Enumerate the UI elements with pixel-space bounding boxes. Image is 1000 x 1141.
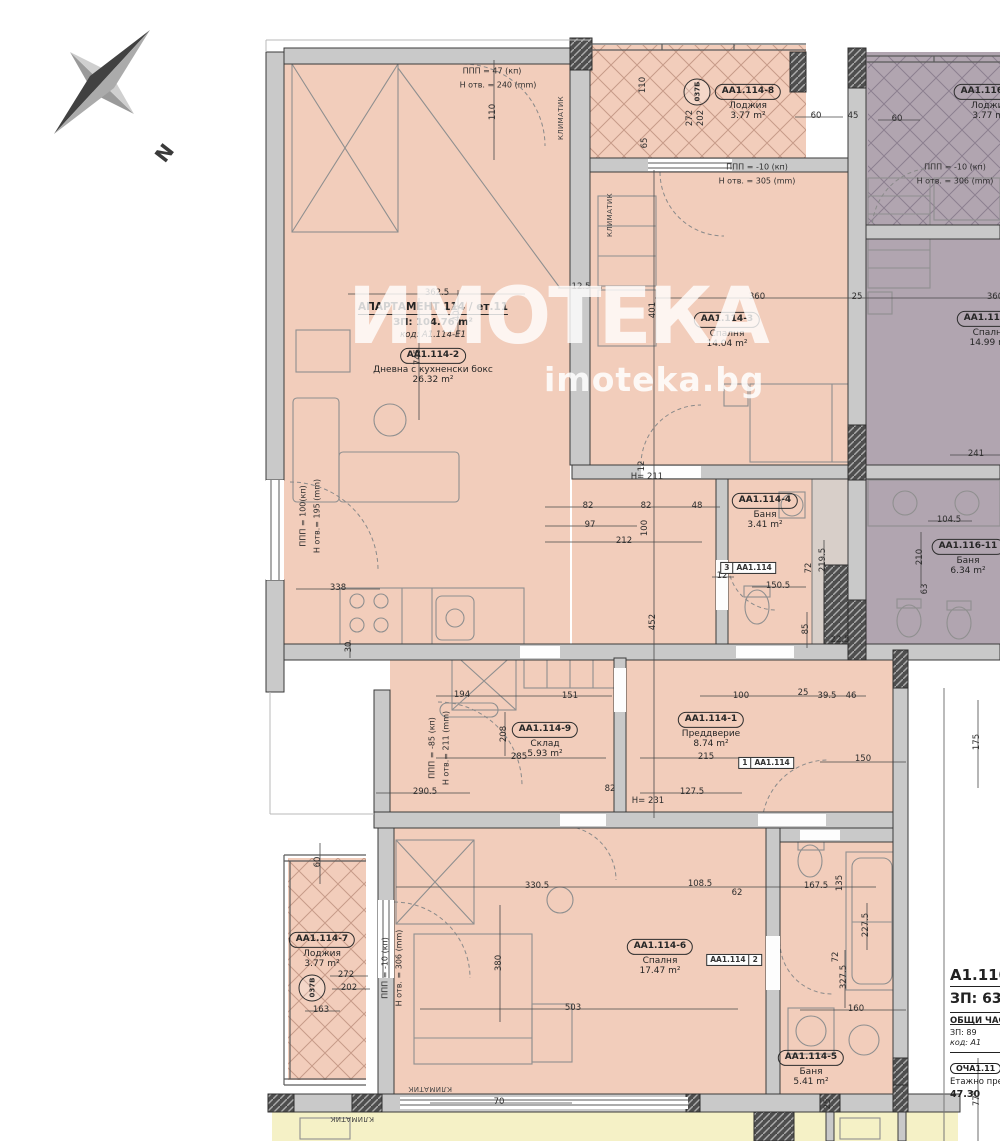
room-label: AA1.114-4 Баня 3.41 m² bbox=[732, 488, 798, 530]
annotation-label: ППП = 100(кп) bbox=[298, 485, 307, 546]
floorplan-canvas: N АПАРТАМЕНТ 114 / ет.11 ЗП: 104.76 m² к… bbox=[0, 0, 1000, 1141]
annotation-label: Н отв. = 306 (mm) bbox=[394, 930, 403, 1007]
dimension-label: 327.5 bbox=[840, 965, 850, 989]
apartment-header: АПАРТАМЕНТ 114 / ет.11 ЗП: 104.76 m² код… bbox=[358, 301, 508, 340]
dimension-value: 401 bbox=[648, 302, 658, 318]
dimension-label: 12 bbox=[638, 461, 648, 472]
room-name: Баня bbox=[778, 1066, 844, 1076]
compass-north-label: N bbox=[150, 139, 179, 167]
dimension-label: 215 bbox=[698, 753, 714, 763]
annotation-label: ППП = -85 (кп) bbox=[427, 717, 436, 779]
dimension-value: 25 bbox=[852, 292, 863, 302]
annotation-text: Н отв.= 211 (mm) bbox=[441, 711, 450, 785]
info-area: ЗП: 63 bbox=[950, 991, 1000, 1007]
door-tag: 1 AA1.114 bbox=[738, 757, 794, 769]
dimension-value: 403 bbox=[452, 305, 462, 321]
dimension-value: 290.5 bbox=[413, 787, 437, 797]
room-name: Лоджия bbox=[715, 100, 781, 110]
info-common-parts: ОБЩИ ЧАСТИ bbox=[950, 1016, 1000, 1026]
dimension-label: 401 bbox=[649, 302, 659, 318]
annotation-text: КЛИМАТИК bbox=[330, 1115, 374, 1123]
dimension-label: 110 bbox=[489, 104, 499, 120]
room-label: AA1.114-8 Лоджия 3.77 m² bbox=[715, 79, 781, 121]
annotation-label: ППП = -10 (кп) bbox=[380, 937, 389, 999]
dimension-value: 60 bbox=[313, 857, 323, 868]
dimension-label: 452 bbox=[649, 614, 659, 630]
dimension-label: 212 bbox=[616, 537, 632, 547]
dimension-value: 72 bbox=[804, 563, 814, 574]
dimension-label: 135 bbox=[836, 875, 846, 891]
dimension-value: 272 bbox=[338, 970, 354, 980]
room-name: Баня bbox=[932, 555, 1000, 565]
dimension-value: 327.5 bbox=[839, 965, 849, 989]
room-name: Лоджия bbox=[289, 948, 355, 958]
room-id: AA1.114-3 bbox=[694, 312, 760, 328]
dimension-label: 85 bbox=[802, 624, 812, 635]
dimension-label: 82 bbox=[583, 502, 594, 512]
dimension-label: 127.5 bbox=[680, 788, 704, 798]
room-name: Баня bbox=[732, 509, 798, 519]
info-value: 47.30 bbox=[950, 1089, 1000, 1100]
dimension-value: 215 bbox=[698, 752, 714, 762]
dimension-label: 290.5 bbox=[413, 788, 437, 798]
room-area: 17.47 m² bbox=[627, 966, 693, 976]
dimension-label: 72 bbox=[832, 952, 842, 963]
dimension-value: 72 bbox=[831, 952, 841, 963]
room-name: Спалня bbox=[627, 955, 693, 965]
room-id: AA1.116-9 bbox=[957, 311, 1000, 327]
dimension-label: 25 bbox=[824, 1099, 834, 1110]
dimension-label: 97 bbox=[585, 521, 596, 531]
dimension-label: 360 bbox=[749, 293, 765, 303]
dimension-label: 403 bbox=[453, 305, 463, 321]
info-floor-hall: Етажно пре bbox=[950, 1077, 1000, 1087]
annotation-text: ППП = 100(кп) bbox=[298, 485, 307, 546]
annotation-text: ППП = -10 (кп) bbox=[380, 937, 389, 999]
dimension-value: 330.5 bbox=[525, 881, 549, 891]
dimension-label: 194 bbox=[454, 691, 470, 701]
room-label: AA1.114-2 Дневна с кухненски бокс 26.32 … bbox=[373, 343, 493, 385]
dimension-value: 25 bbox=[823, 1099, 833, 1110]
annotation-label: КЛИМАТИК bbox=[330, 1115, 374, 1123]
info-tag: ОЧА1.11 bbox=[950, 1063, 1000, 1074]
dimension-label: 380 bbox=[495, 955, 505, 971]
dimension-label: 48 bbox=[692, 502, 703, 512]
dimension-value: 60 bbox=[892, 114, 903, 124]
annotation-label: Н отв. = 240 (mm) bbox=[460, 80, 537, 89]
dimension-value: 100 bbox=[733, 691, 749, 701]
dimension-label: 219.5 bbox=[819, 548, 829, 572]
labels-layer: N АПАРТАМЕНТ 114 / ет.11 ЗП: 104.76 m² к… bbox=[0, 0, 1000, 1141]
dimension-value: 202 bbox=[696, 110, 706, 126]
dimension-value: 151 bbox=[562, 691, 578, 701]
room-id: AA1.114-2 bbox=[400, 348, 466, 364]
dimension-label: 22.5 bbox=[831, 636, 850, 646]
dimension-value: 12.5 bbox=[572, 282, 591, 292]
dimension-value: 70 bbox=[494, 1097, 505, 1107]
annotation-text: ППП = -10 (кп) bbox=[924, 162, 986, 171]
annotation-text: Н отв. = 306 (mm) bbox=[394, 930, 403, 1007]
room-label: AA1.114-5 Баня 5.41 m² bbox=[778, 1045, 844, 1087]
dimension-label: 46 bbox=[846, 692, 857, 702]
room-name: Склад bbox=[512, 738, 578, 748]
dimension-label: 25 bbox=[852, 293, 863, 303]
annotation-label: ППП = 47 (кп) bbox=[463, 66, 522, 75]
dimension-label: 65 bbox=[641, 138, 651, 149]
dimension-value: 12 bbox=[637, 461, 647, 472]
dimension-label: 167.5 bbox=[804, 882, 828, 892]
annotation-text: Н отв.= 195 (mm) bbox=[312, 479, 321, 553]
info-block: A1.110 - ЗП: 63 ОБЩИ ЧАСТИ ЗП: 89 код: А… bbox=[950, 966, 1000, 1100]
dimension-value: 227.5 bbox=[861, 913, 871, 937]
dimension-label: 82 bbox=[605, 785, 616, 795]
annotation-text: КЛИМАТИК bbox=[606, 193, 614, 237]
dimension-label: 72 bbox=[805, 563, 815, 574]
room-area: 8.74 m² bbox=[678, 739, 744, 749]
dimension-label: 110 bbox=[639, 77, 649, 93]
dimension-label: 60 bbox=[892, 115, 903, 125]
dimension-value: 110 bbox=[638, 77, 648, 93]
dimension-value: 82 bbox=[583, 501, 594, 511]
dimension-value: 62 bbox=[732, 888, 743, 898]
annotation-label: КЛИМАТИК bbox=[606, 193, 614, 237]
apartment-code: код: A1.114-E1 bbox=[358, 330, 508, 340]
dimension-label: 503 bbox=[565, 1004, 581, 1014]
annotation-text: ППП = -10 (кп) bbox=[726, 162, 788, 171]
dimension-label: 227.5 bbox=[862, 913, 872, 937]
room-name: Преддверие bbox=[678, 728, 744, 738]
room-area: 3.77 m² bbox=[289, 959, 355, 969]
dimension-value: 160 bbox=[848, 1004, 864, 1014]
dimension-label: H= 231 bbox=[632, 797, 664, 807]
apartment-area: ЗП: 104.76 m² bbox=[358, 317, 508, 328]
door-tag-right: 2 bbox=[750, 955, 761, 965]
door-tag-left: 3 bbox=[721, 563, 733, 573]
room-area: 26.32 m² bbox=[373, 375, 493, 385]
annotation-label: Н отв. = 305 (mm) bbox=[719, 176, 796, 185]
annotation-text: Н отв. = 240 (mm) bbox=[460, 80, 537, 89]
dimension-value: 163 bbox=[313, 1005, 329, 1015]
info-title: A1.110 - bbox=[950, 966, 1000, 987]
room-id: AA1.114-1 bbox=[678, 712, 744, 728]
dimension-value: 82 bbox=[605, 784, 616, 794]
dimension-value: 85 bbox=[801, 624, 811, 635]
annotation-label: КЛИМАТИК bbox=[557, 96, 565, 140]
dimension-label: 60 bbox=[314, 857, 324, 868]
dimension-label: 12.5 bbox=[572, 283, 591, 293]
info-common-area: ЗП: 89 bbox=[950, 1028, 1000, 1037]
room-id: AA1.114-8 bbox=[715, 84, 781, 100]
room-id: AA1.114-7 bbox=[289, 932, 355, 948]
dimension-label: 163 bbox=[313, 1006, 329, 1016]
dimension-label: 108.5 bbox=[688, 880, 712, 890]
room-area: 6.34 m² bbox=[932, 566, 1000, 576]
dimension-label: 210 bbox=[916, 549, 926, 565]
dimension-label: 202 bbox=[341, 984, 357, 994]
dimension-value: 110 bbox=[488, 104, 498, 120]
dimension-label: 70 bbox=[494, 1098, 505, 1108]
dimension-value: 219.5 bbox=[818, 548, 828, 572]
room-name: Спалня bbox=[694, 328, 760, 338]
dimension-value: 135 bbox=[835, 875, 845, 891]
dimension-value: 380 bbox=[494, 955, 504, 971]
dimension-value: 46 bbox=[846, 691, 857, 701]
dimension-value: 45 bbox=[848, 111, 859, 121]
riser-id: 037В bbox=[308, 978, 316, 998]
room-label: AA1.114-7 Лоджия 3.77 m² bbox=[289, 927, 355, 969]
room-id: AA1.114-6 bbox=[627, 939, 693, 955]
dimension-value: H= 231 bbox=[632, 796, 664, 806]
info-divider bbox=[950, 1052, 1000, 1053]
room-id: AA1.116-10 bbox=[954, 84, 1000, 100]
dimension-value: 202 bbox=[341, 983, 357, 993]
dimension-value: 150.5 bbox=[766, 581, 790, 591]
dimension-value: 150 bbox=[855, 754, 871, 764]
dimension-label: 63 bbox=[921, 584, 931, 595]
annotation-label: ППП = -10 (кп) bbox=[726, 162, 788, 171]
room-area: 3.77 m² bbox=[954, 111, 1000, 121]
annotation-text: ППП = 47 (кп) bbox=[463, 66, 522, 75]
dimension-label: 39.5 bbox=[818, 692, 837, 702]
dimension-value: 65 bbox=[640, 138, 650, 149]
room-label: AA1.114-1 Преддверие 8.74 m² bbox=[678, 707, 744, 749]
dimension-label: 175 bbox=[973, 734, 983, 750]
dimension-value: 82 bbox=[641, 501, 652, 511]
dimension-label: 272 bbox=[338, 971, 354, 981]
dimension-value: 338 bbox=[330, 583, 346, 593]
room-area: 3.77 m² bbox=[715, 111, 781, 121]
dimension-value: 745 bbox=[413, 349, 423, 365]
dimension-label: 150 bbox=[855, 755, 871, 765]
dimension-value: 127.5 bbox=[680, 787, 704, 797]
dimension-value: 108.5 bbox=[688, 879, 712, 889]
dimension-label: 45 bbox=[848, 112, 859, 122]
dimension-label: 241 bbox=[968, 450, 984, 460]
dimension-value: 104.5 bbox=[937, 515, 961, 525]
door-tag: 3 AA1.114 bbox=[720, 562, 776, 574]
room-area: 3.41 m² bbox=[732, 520, 798, 530]
room-label: AA1.114-6 Спалня 17.47 m² bbox=[627, 934, 693, 976]
dimension-label: 100 bbox=[641, 520, 651, 536]
dimension-value: 100 bbox=[640, 520, 650, 536]
info-divider bbox=[950, 1012, 1000, 1013]
dimension-value: 48 bbox=[692, 501, 703, 511]
room-label: AA1.114-3 Спалня 14.04 m² bbox=[694, 307, 760, 349]
dimension-label: 100 bbox=[733, 692, 749, 702]
apartment-title: АПАРТАМЕНТ 114 / ет.11 bbox=[358, 301, 508, 315]
dimension-label: 62 bbox=[732, 889, 743, 899]
door-tag-left: 1 bbox=[739, 758, 751, 768]
annotation-label: ППП = -10 (кп) bbox=[924, 162, 986, 171]
dimension-label: 150.5 bbox=[766, 582, 790, 592]
dimension-value: 360 bbox=[749, 292, 765, 302]
dimension-value: 39.5 bbox=[818, 691, 837, 701]
dimension-value: 362.5 bbox=[425, 288, 449, 298]
dimension-label: 104.5 bbox=[937, 516, 961, 526]
room-name: Дневна с кухненски бокс bbox=[373, 364, 493, 374]
dimension-value: 175 bbox=[972, 734, 982, 750]
annotation-label: КЛИМАТИК bbox=[408, 1085, 452, 1093]
annotation-text: ППП = -85 (кп) bbox=[427, 717, 436, 779]
dimension-value: 360 bbox=[987, 292, 1000, 302]
riser-id: 037Б bbox=[693, 82, 701, 102]
dimension-value: 194 bbox=[454, 690, 470, 700]
dimension-label: 285 bbox=[511, 753, 527, 763]
dimension-value: 167.5 bbox=[804, 881, 828, 891]
dimension-value: H= 211 bbox=[631, 472, 663, 482]
dimension-value: 22.5 bbox=[831, 635, 850, 645]
dimension-value: 241 bbox=[968, 449, 984, 459]
dimension-label: 30 bbox=[345, 642, 355, 653]
dimension-value: 97 bbox=[585, 520, 596, 530]
room-label: AA1.116-11 Баня 6.34 m² bbox=[932, 534, 1000, 576]
dimension-value: 63 bbox=[920, 584, 930, 595]
door-tag-left: AA1.114 bbox=[707, 955, 749, 965]
room-area: 14.99 m² bbox=[957, 338, 1000, 348]
dimension-label: 160 bbox=[848, 1005, 864, 1015]
dimension-value: 212 bbox=[616, 536, 632, 546]
dimension-label: 25 bbox=[798, 689, 809, 699]
dimension-label: 330.5 bbox=[525, 882, 549, 892]
riser-circle: 037В bbox=[299, 975, 326, 1002]
room-area: 14.04 m² bbox=[694, 339, 760, 349]
dimension-label: H= 211 bbox=[631, 473, 663, 483]
room-id: AA1.114-9 bbox=[512, 722, 578, 738]
dimension-value: 272 bbox=[685, 110, 695, 126]
room-id: AA1.116-11 bbox=[932, 539, 1000, 555]
dimension-value: 210 bbox=[915, 549, 925, 565]
annotation-text: КЛИМАТИК bbox=[557, 96, 565, 140]
door-tag-right: AA1.114 bbox=[751, 758, 792, 768]
annotation-label: Н отв.= 195 (mm) bbox=[312, 479, 321, 553]
dimension-label: 338 bbox=[330, 584, 346, 594]
dimension-value: 30 bbox=[344, 642, 354, 653]
dimension-value: 208 bbox=[499, 726, 509, 742]
door-tag-right: AA1.114 bbox=[733, 563, 774, 573]
room-id: AA1.114-4 bbox=[732, 493, 798, 509]
room-id: AA1.114-5 bbox=[778, 1050, 844, 1066]
dimension-value: 25 bbox=[798, 688, 809, 698]
door-tag: AA1.114 2 bbox=[706, 954, 762, 966]
dimension-label: 82 bbox=[641, 502, 652, 512]
dimension-label: 60 bbox=[811, 112, 822, 122]
dimension-label: 208 bbox=[500, 726, 510, 742]
info-code: код: А1 bbox=[950, 1038, 1000, 1047]
dimension-value: 503 bbox=[565, 1003, 581, 1013]
annotation-label: Н отв.= 211 (mm) bbox=[441, 711, 450, 785]
room-label: AA1.116-10 Лоджия 3.77 m² bbox=[954, 79, 1000, 121]
room-label: AA1.116-9 Спалня 14.99 m² bbox=[957, 306, 1000, 348]
room-name: Спалня bbox=[957, 327, 1000, 337]
room-name: Лоджия bbox=[954, 100, 1000, 110]
dimension-label: 745 bbox=[414, 349, 424, 365]
annotation-text: Н отв. = 306 (mm) bbox=[917, 176, 994, 185]
room-area: 5.41 m² bbox=[778, 1077, 844, 1087]
dimension-label: 151 bbox=[562, 692, 578, 702]
annotation-label: Н отв. = 306 (mm) bbox=[917, 176, 994, 185]
riser-circle: 037Б bbox=[684, 79, 711, 106]
dimension-label: 272 bbox=[686, 110, 696, 126]
dimension-label: 360 bbox=[987, 293, 1000, 303]
dimension-value: 285 bbox=[511, 752, 527, 762]
dimension-label: 202 bbox=[697, 110, 707, 126]
dimension-value: 452 bbox=[648, 614, 658, 630]
dimension-label: 362.5 bbox=[425, 289, 449, 299]
annotation-text: КЛИМАТИК bbox=[408, 1085, 452, 1093]
dimension-value: 60 bbox=[811, 111, 822, 121]
annotation-text: Н отв. = 305 (mm) bbox=[719, 176, 796, 185]
